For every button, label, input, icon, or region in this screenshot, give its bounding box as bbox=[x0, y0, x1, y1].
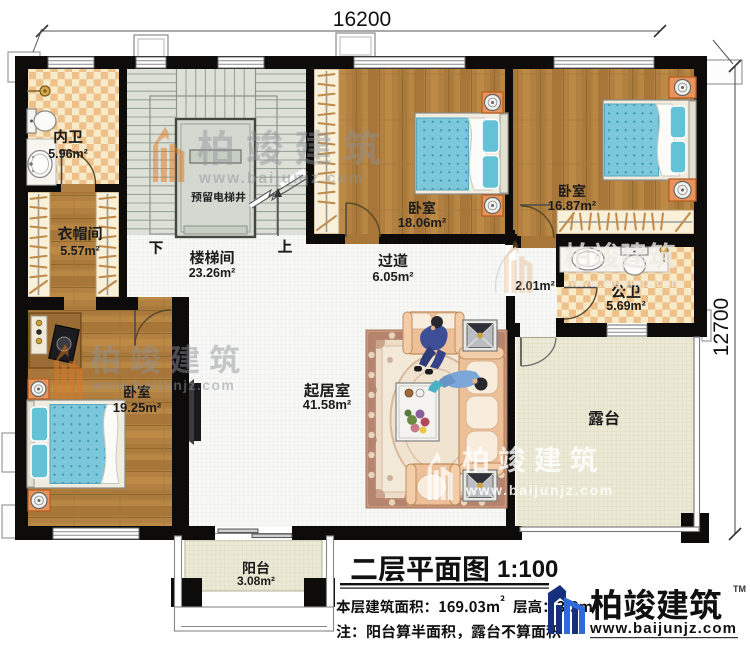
svg-text:23.26m²: 23.26m² bbox=[189, 266, 236, 280]
svg-text:3.08m²: 3.08m² bbox=[237, 574, 275, 588]
svg-text:18.06m²: 18.06m² bbox=[398, 215, 447, 230]
svg-text:41.58m²: 41.58m² bbox=[303, 397, 352, 412]
svg-text:5.57m²: 5.57m² bbox=[60, 244, 100, 258]
svg-text:TM: TM bbox=[733, 584, 746, 594]
svg-text:5.69m²: 5.69m² bbox=[606, 299, 646, 313]
svg-text:www.baijunjz.com: www.baijunjz.com bbox=[589, 620, 737, 637]
svg-text:12700: 12700 bbox=[710, 298, 733, 356]
svg-text:16200: 16200 bbox=[333, 8, 391, 31]
svg-text:www.baijunjz.com: www.baijunjz.com bbox=[465, 482, 614, 498]
svg-text:www.baijunjz.com: www.baijunjz.com bbox=[198, 170, 365, 187]
svg-text:19.25m²: 19.25m² bbox=[113, 400, 162, 415]
svg-text:6.05m²: 6.05m² bbox=[372, 269, 414, 284]
svg-text:www.baijunjz.com: www.baijunjz.com bbox=[91, 377, 235, 393]
svg-text:5.96m²: 5.96m² bbox=[48, 147, 88, 161]
svg-text:1:100: 1:100 bbox=[497, 556, 558, 583]
svg-text:www.baijunjz.com: www.baijunjz.com bbox=[569, 278, 682, 290]
svg-text:16.87m²: 16.87m² bbox=[548, 198, 597, 213]
